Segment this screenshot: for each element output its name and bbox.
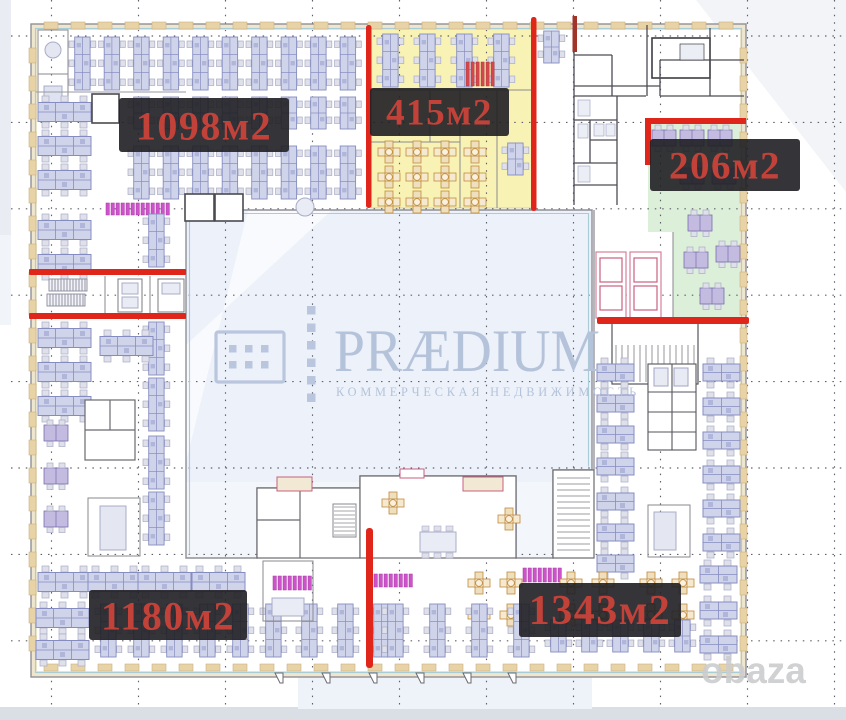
- svg-text:PRÆDIUM: PRÆDIUM: [334, 318, 600, 384]
- svg-text:obaza: obaza: [701, 650, 806, 691]
- svg-text:1098м2: 1098м2: [136, 104, 272, 149]
- svg-text:415м2: 415м2: [386, 93, 493, 134]
- svg-text:1180м2: 1180м2: [101, 594, 235, 639]
- svg-text:206м2: 206м2: [669, 145, 781, 188]
- svg-text:КОММЕРЧЕСКАЯ НЕДВИЖИМОСТЬ: КОММЕРЧЕСКАЯ НЕДВИЖИМОСТЬ: [336, 384, 640, 399]
- svg-text:1343м2: 1343м2: [529, 588, 672, 634]
